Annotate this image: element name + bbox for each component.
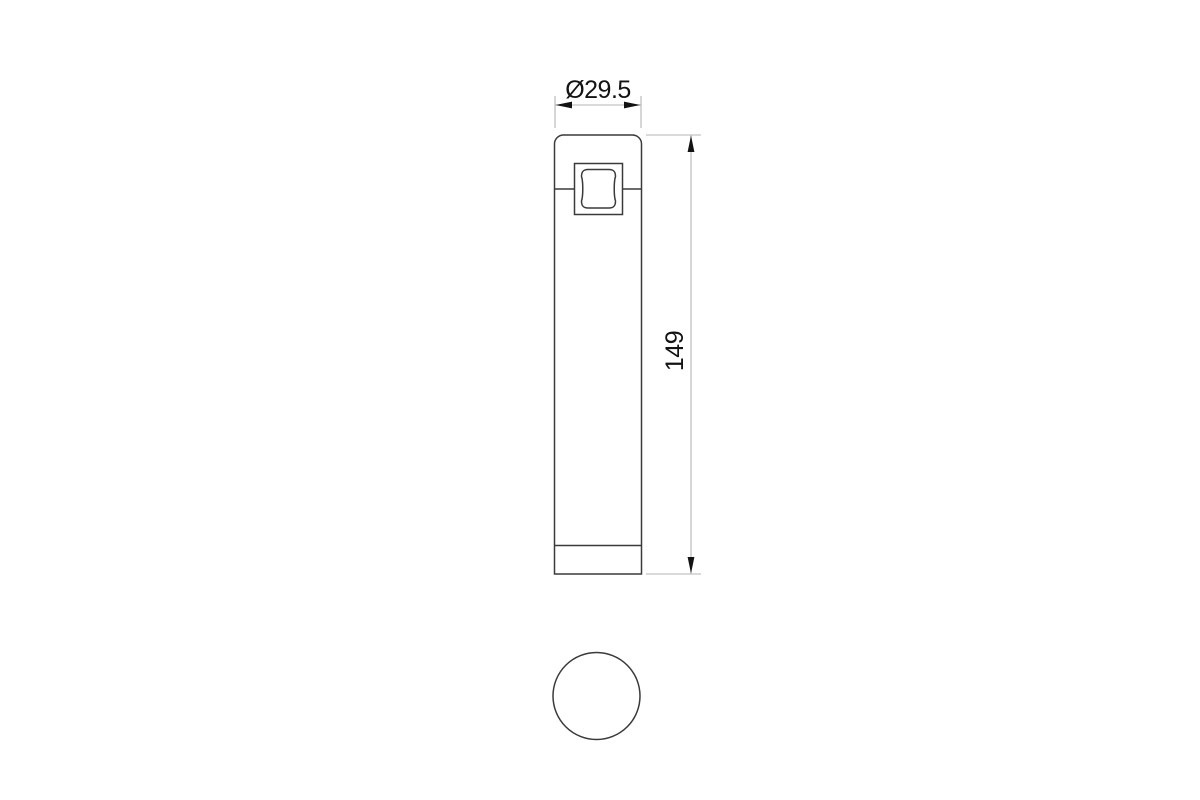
switch-button-outline: [582, 170, 616, 209]
bottom-view-circle: [553, 653, 640, 740]
technical-drawing-canvas: Ø29.5 149: [0, 0, 1200, 800]
height-dimension-label: 149: [661, 331, 689, 371]
switch-bezel-outline: [575, 164, 623, 215]
arrowhead-down-icon: [688, 557, 695, 574]
arrowhead-up-icon: [688, 136, 695, 153]
diameter-dimension-label: Ø29.5: [565, 76, 631, 104]
drawing-page: Ø29.5 149: [0, 0, 1200, 800]
part-outline-group: [553, 135, 642, 740]
body-side-view-outline: [555, 135, 642, 574]
dimension-text-group: Ø29.5 149: [565, 76, 689, 371]
